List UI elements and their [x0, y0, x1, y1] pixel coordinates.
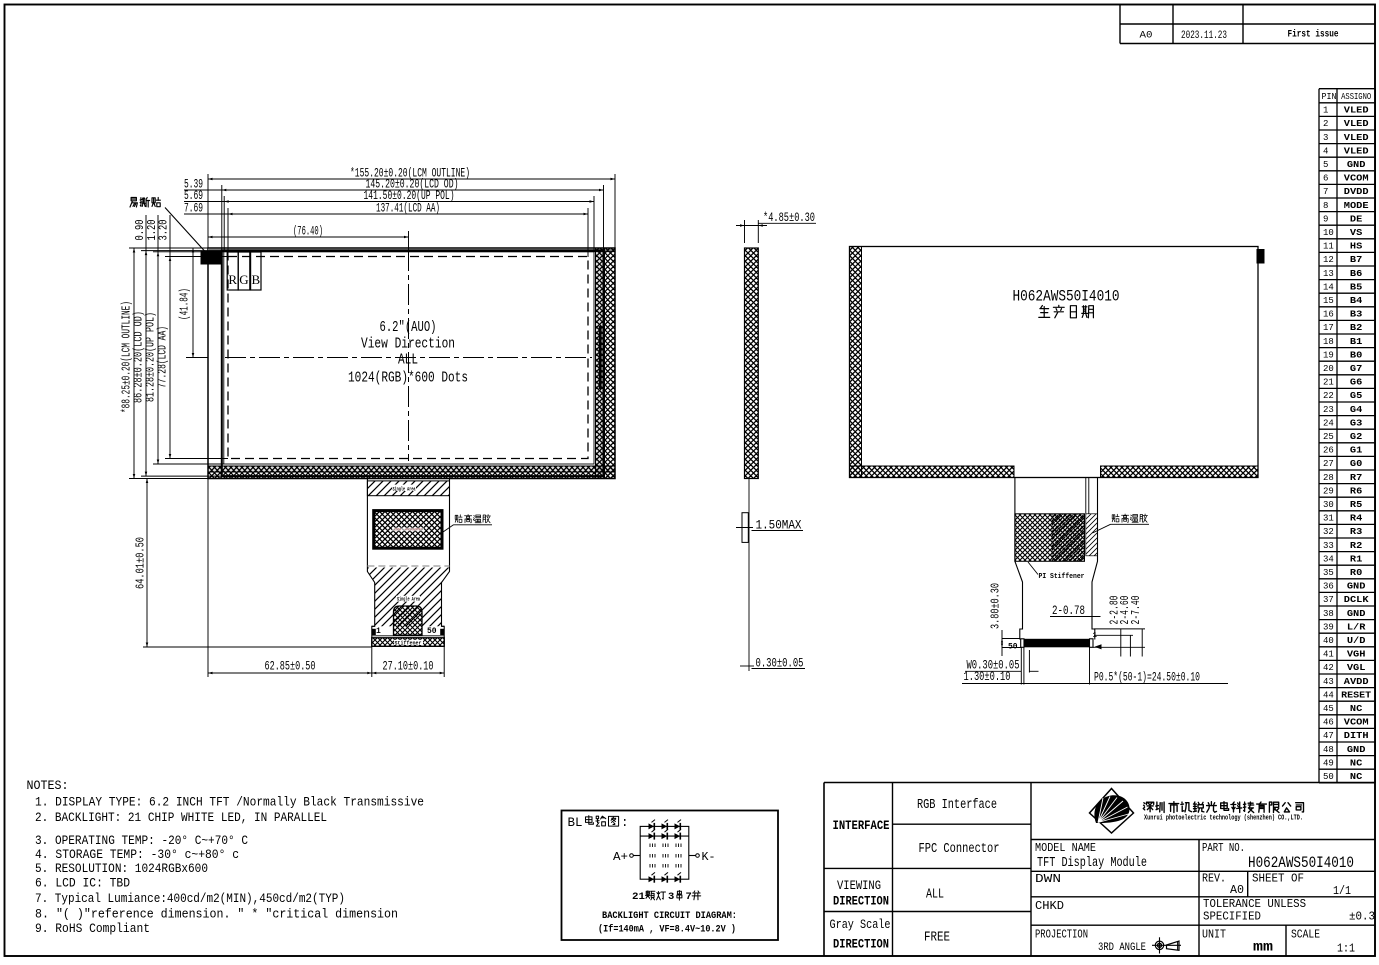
- svg-text:VIEWING: VIEWING: [837, 879, 881, 893]
- svg-text:37: 37: [1323, 595, 1334, 605]
- svg-text:B5: B5: [1350, 282, 1362, 292]
- svg-text:13: 13: [1323, 269, 1334, 279]
- svg-text:DE: DE: [1350, 214, 1363, 224]
- svg-text:34: 34: [1323, 554, 1334, 564]
- svg-text:2-7.40: 2-7.40: [1129, 596, 1143, 625]
- svg-text:4. STORAGE TEMP: -30° c~+80° c: 4. STORAGE TEMP: -30° c~+80° c: [35, 848, 239, 862]
- svg-text:1: 1: [1323, 106, 1328, 116]
- svg-text:VGH: VGH: [1347, 650, 1366, 660]
- svg-text:Gray Scale: Gray Scale: [830, 917, 891, 932]
- svg-text:28: 28: [1323, 473, 1334, 483]
- svg-text:R: R: [228, 272, 237, 287]
- svg-text:First issue: First issue: [1288, 29, 1339, 41]
- svg-text:21: 21: [1323, 378, 1334, 388]
- svg-text:DIRECTION: DIRECTION: [833, 938, 889, 952]
- svg-text:PROJECTION: PROJECTION: [1035, 928, 1088, 942]
- svg-text:50: 50: [1323, 772, 1334, 782]
- svg-text:25: 25: [1323, 432, 1334, 442]
- svg-text:21: 21: [632, 891, 645, 903]
- svg-text:1: 1: [376, 627, 381, 636]
- svg-text:2-0.78: 2-0.78: [1052, 604, 1085, 618]
- svg-text:PART NO.: PART NO.: [1202, 841, 1245, 855]
- svg-text:G4: G4: [1350, 405, 1363, 415]
- svg-text:50: 50: [427, 627, 437, 636]
- svg-text:1.30±0.10: 1.30±0.10: [964, 670, 1011, 684]
- svg-text:VCOM: VCOM: [1344, 174, 1369, 184]
- svg-text:FREE: FREE: [924, 931, 950, 946]
- svg-text:15: 15: [1323, 296, 1334, 306]
- svg-text:G1: G1: [1350, 446, 1363, 456]
- svg-text:3. OPERATING TEMP: -20° C~+70°: 3. OPERATING TEMP: -20° C~+70° C: [35, 834, 248, 848]
- svg-text:8. "( )"reference dimension. ": 8. "( )"reference dimension. " * "critic…: [35, 907, 398, 921]
- svg-text:49: 49: [1323, 758, 1334, 768]
- svg-text:L/R: L/R: [1347, 622, 1366, 632]
- svg-text:B0: B0: [1350, 350, 1362, 360]
- svg-text:14: 14: [1323, 282, 1334, 292]
- svg-text:6.2"(AUO): 6.2"(AUO): [380, 320, 437, 336]
- svg-text:R3: R3: [1350, 527, 1362, 537]
- svg-text:41: 41: [1323, 650, 1334, 660]
- svg-text:2023.11.23: 2023.11.23: [1181, 30, 1227, 42]
- svg-text:G7: G7: [1350, 364, 1362, 374]
- svg-text:7.69: 7.69: [184, 202, 203, 216]
- svg-text:GND: GND: [1347, 609, 1366, 619]
- svg-text:DITH: DITH: [1344, 731, 1369, 741]
- svg-text:H062AWS50I4010: H062AWS50I4010: [1013, 288, 1120, 306]
- svg-text:1/1: 1/1: [1333, 884, 1351, 898]
- svg-text:3.80±0.30: 3.80±0.30: [989, 583, 1003, 629]
- svg-text:20: 20: [1323, 364, 1334, 374]
- svg-text:40: 40: [1323, 636, 1334, 646]
- svg-text:MODE: MODE: [1344, 201, 1369, 211]
- svg-text:39: 39: [1323, 622, 1334, 632]
- svg-text:R4: R4: [1350, 514, 1363, 524]
- svg-text:4: 4: [1323, 146, 1328, 156]
- svg-text:B1: B1: [1350, 337, 1363, 347]
- svg-text:A+: A+: [613, 851, 628, 864]
- svg-text:46: 46: [1323, 718, 1334, 728]
- svg-text:38: 38: [1323, 609, 1334, 619]
- svg-text:B7: B7: [1350, 255, 1362, 265]
- svg-text:8: 8: [1323, 201, 1328, 211]
- svg-text:NC: NC: [1350, 704, 1363, 714]
- svg-text:32: 32: [1323, 527, 1334, 537]
- svg-text:44: 44: [1323, 690, 1334, 700]
- svg-text:A0: A0: [1230, 883, 1244, 897]
- svg-text:G0: G0: [1350, 459, 1362, 469]
- svg-text:B: B: [251, 272, 260, 287]
- svg-text:View Direction: View Direction: [361, 337, 455, 353]
- svg-text:27: 27: [1323, 459, 1334, 469]
- svg-text:62.85±0.50: 62.85±0.50: [265, 660, 316, 674]
- svg-text:9: 9: [1323, 214, 1328, 224]
- svg-text:5: 5: [1323, 160, 1328, 170]
- svg-text::: :: [621, 816, 629, 830]
- svg-text:GND: GND: [1347, 745, 1366, 755]
- svg-text:(76.40): (76.40): [293, 224, 323, 239]
- svg-text:17: 17: [1323, 323, 1334, 333]
- svg-text:7. Typical Lumiance:400cd/m2(M: 7. Typical Lumiance:400cd/m2(MIN),450cd/…: [35, 892, 345, 906]
- svg-text:12: 12: [1323, 255, 1334, 265]
- svg-text:R5: R5: [1350, 500, 1362, 510]
- svg-text:1: 1: [1093, 632, 1098, 640]
- svg-text:10: 10: [1323, 228, 1334, 238]
- svg-text:6: 6: [1323, 174, 1328, 184]
- svg-text:1024(RGB)*600 Dots: 1024(RGB)*600 Dots: [348, 371, 468, 387]
- svg-text:29: 29: [1323, 486, 1334, 496]
- svg-text:ALL: ALL: [398, 353, 418, 369]
- svg-text:SHEET OF: SHEET OF: [1252, 872, 1304, 886]
- svg-text:DVDD: DVDD: [1344, 187, 1369, 197]
- svg-text:B6: B6: [1350, 269, 1362, 279]
- svg-text:R7: R7: [1350, 473, 1362, 483]
- svg-text:B2: B2: [1350, 323, 1362, 333]
- svg-text:31: 31: [1323, 514, 1334, 524]
- svg-text:P0.5*(50-1)=24.50±0.10: P0.5*(50-1)=24.50±0.10: [1094, 671, 1200, 685]
- svg-text:PI Stiffener: PI Stiffener: [1039, 573, 1085, 581]
- svg-text:ALL: ALL: [926, 888, 944, 903]
- svg-text:RESET: RESET: [1341, 690, 1372, 700]
- svg-text:DIRECTION: DIRECTION: [833, 895, 889, 909]
- svg-text:9. RoHS Compliant: 9. RoHS Compliant: [35, 922, 150, 936]
- svg-text:NOTES:: NOTES:: [27, 779, 69, 793]
- svg-text:24: 24: [1323, 418, 1334, 428]
- svg-text:VLED: VLED: [1344, 119, 1369, 129]
- svg-text:DWN: DWN: [1035, 872, 1061, 886]
- svg-text:R2: R2: [1350, 541, 1362, 551]
- svg-text:5. RESOLUTION: 1024RGBx600: 5. RESOLUTION: 1024RGBx600: [35, 862, 208, 876]
- svg-text:VLED: VLED: [1344, 133, 1369, 143]
- svg-text:NC: NC: [1350, 758, 1363, 768]
- svg-text:B3: B3: [1350, 310, 1362, 320]
- svg-text:GND: GND: [1347, 160, 1366, 170]
- svg-text:R0: R0: [1350, 568, 1362, 578]
- svg-text:FPC Connector: FPC Connector: [919, 842, 1000, 857]
- svg-text:H062AWS50I4010: H062AWS50I4010: [1248, 854, 1354, 872]
- svg-text:HS: HS: [1350, 242, 1363, 252]
- svg-text:SCALE: SCALE: [1291, 928, 1320, 942]
- svg-text:7: 7: [686, 891, 692, 903]
- svg-text:mm: mm: [1253, 940, 1273, 956]
- svg-text:137.41(LCD AA): 137.41(LCD AA): [376, 201, 440, 216]
- svg-text:BACKLIGHT CIRCUIT DIAGRAM:: BACKLIGHT CIRCUIT DIAGRAM:: [602, 910, 737, 922]
- svg-text:UNIT: UNIT: [1202, 928, 1226, 942]
- svg-text:30: 30: [1323, 500, 1334, 510]
- svg-text:AVDD: AVDD: [1344, 677, 1369, 687]
- svg-text:3: 3: [1323, 133, 1328, 143]
- svg-text:VLED: VLED: [1344, 106, 1369, 116]
- svg-text:G2: G2: [1350, 432, 1362, 442]
- svg-text:Single Area: Single Area: [397, 597, 420, 603]
- svg-text:G: G: [239, 272, 248, 287]
- svg-text:INTERFACE: INTERFACE: [833, 819, 890, 833]
- svg-text:R6: R6: [1350, 486, 1362, 496]
- svg-text:23: 23: [1323, 405, 1334, 415]
- svg-text:U/D: U/D: [1347, 636, 1366, 646]
- svg-text:GND: GND: [1347, 582, 1366, 592]
- svg-text:VCOM: VCOM: [1344, 718, 1369, 728]
- svg-text:3RD ANGLE: 3RD ANGLE: [1098, 942, 1146, 954]
- svg-text:G3: G3: [1350, 418, 1362, 428]
- svg-text:22: 22: [1323, 391, 1334, 401]
- svg-text:27.10±0.10: 27.10±0.10: [383, 660, 434, 674]
- svg-text:3M 468MP: 3M 468MP: [394, 529, 423, 533]
- svg-text:RGB Interface: RGB Interface: [917, 798, 997, 813]
- svg-text:B4: B4: [1350, 296, 1363, 306]
- svg-text:33: 33: [1323, 541, 1334, 551]
- svg-text:2. BACKLIGHT: 21 CHIP WHITE LE: 2. BACKLIGHT: 21 CHIP WHITE LED, IN PARA…: [35, 811, 327, 825]
- svg-text:R1: R1: [1350, 554, 1363, 564]
- svg-text:(41.84): (41.84): [178, 288, 192, 320]
- svg-text:NC: NC: [1350, 772, 1363, 782]
- svg-text:G5: G5: [1350, 391, 1362, 401]
- svg-text:45: 45: [1323, 704, 1334, 714]
- svg-text:TFT Display Module: TFT Display Module: [1037, 856, 1147, 871]
- svg-text:7: 7: [1323, 187, 1328, 197]
- svg-text:18: 18: [1323, 337, 1334, 347]
- svg-text:16: 16: [1323, 310, 1334, 320]
- svg-text:A0: A0: [1140, 31, 1153, 42]
- svg-text:64.01±0.50: 64.01±0.50: [134, 537, 148, 589]
- svg-text:SPECIFIED: SPECIFIED: [1203, 910, 1261, 924]
- svg-text:K-: K-: [702, 851, 716, 864]
- svg-text:VLED: VLED: [1344, 146, 1369, 156]
- svg-text:Xunrui photoelectric technolog: Xunrui photoelectric technology (shenzhe…: [1144, 815, 1303, 823]
- svg-text:DCLK: DCLK: [1344, 595, 1369, 605]
- svg-text:19: 19: [1323, 350, 1334, 360]
- svg-text:50: 50: [1008, 643, 1018, 652]
- svg-text:BL: BL: [568, 816, 583, 830]
- svg-text:G6: G6: [1350, 378, 1362, 388]
- svg-text:±0.3: ±0.3: [1349, 910, 1375, 924]
- svg-text:43: 43: [1323, 677, 1334, 687]
- svg-text:MODEL NAME: MODEL NAME: [1035, 841, 1096, 855]
- svg-text:42: 42: [1323, 663, 1334, 673]
- svg-text:VGL: VGL: [1347, 663, 1366, 673]
- svg-text:REV.: REV.: [1202, 872, 1226, 886]
- svg-text:36: 36: [1323, 582, 1334, 592]
- svg-text:CHKD: CHKD: [1035, 899, 1064, 913]
- svg-text:11: 11: [1323, 242, 1334, 252]
- svg-text:47: 47: [1323, 731, 1334, 741]
- svg-text:Single Area: Single Area: [393, 486, 416, 492]
- svg-text:ASSIGNO: ASSIGNO: [1341, 92, 1371, 102]
- svg-text:77.28(LCD AA): 77.28(LCD AA): [156, 326, 170, 388]
- svg-text:35: 35: [1323, 568, 1334, 578]
- svg-text:1. DISPLAY TYPE: 6.2 INCH TFT: 1. DISPLAY TYPE: 6.2 INCH TFT /Normally …: [35, 796, 424, 810]
- svg-text:26: 26: [1323, 446, 1334, 456]
- svg-text:3.20: 3.20: [157, 220, 171, 241]
- svg-text:3: 3: [668, 891, 674, 903]
- svg-text:(If=140mA , VF=8.4V~10.2V ): (If=140mA , VF=8.4V~10.2V ): [598, 924, 736, 936]
- svg-text:Stiffener: Stiffener: [395, 640, 422, 647]
- svg-text:6. LCD IC: TBD: 6. LCD IC: TBD: [35, 876, 130, 890]
- svg-text:2: 2: [1323, 119, 1328, 129]
- svg-text:PIN: PIN: [1322, 92, 1337, 102]
- svg-text:1:1: 1:1: [1337, 942, 1355, 956]
- svg-text:VS: VS: [1350, 228, 1363, 238]
- svg-text:48: 48: [1323, 745, 1334, 755]
